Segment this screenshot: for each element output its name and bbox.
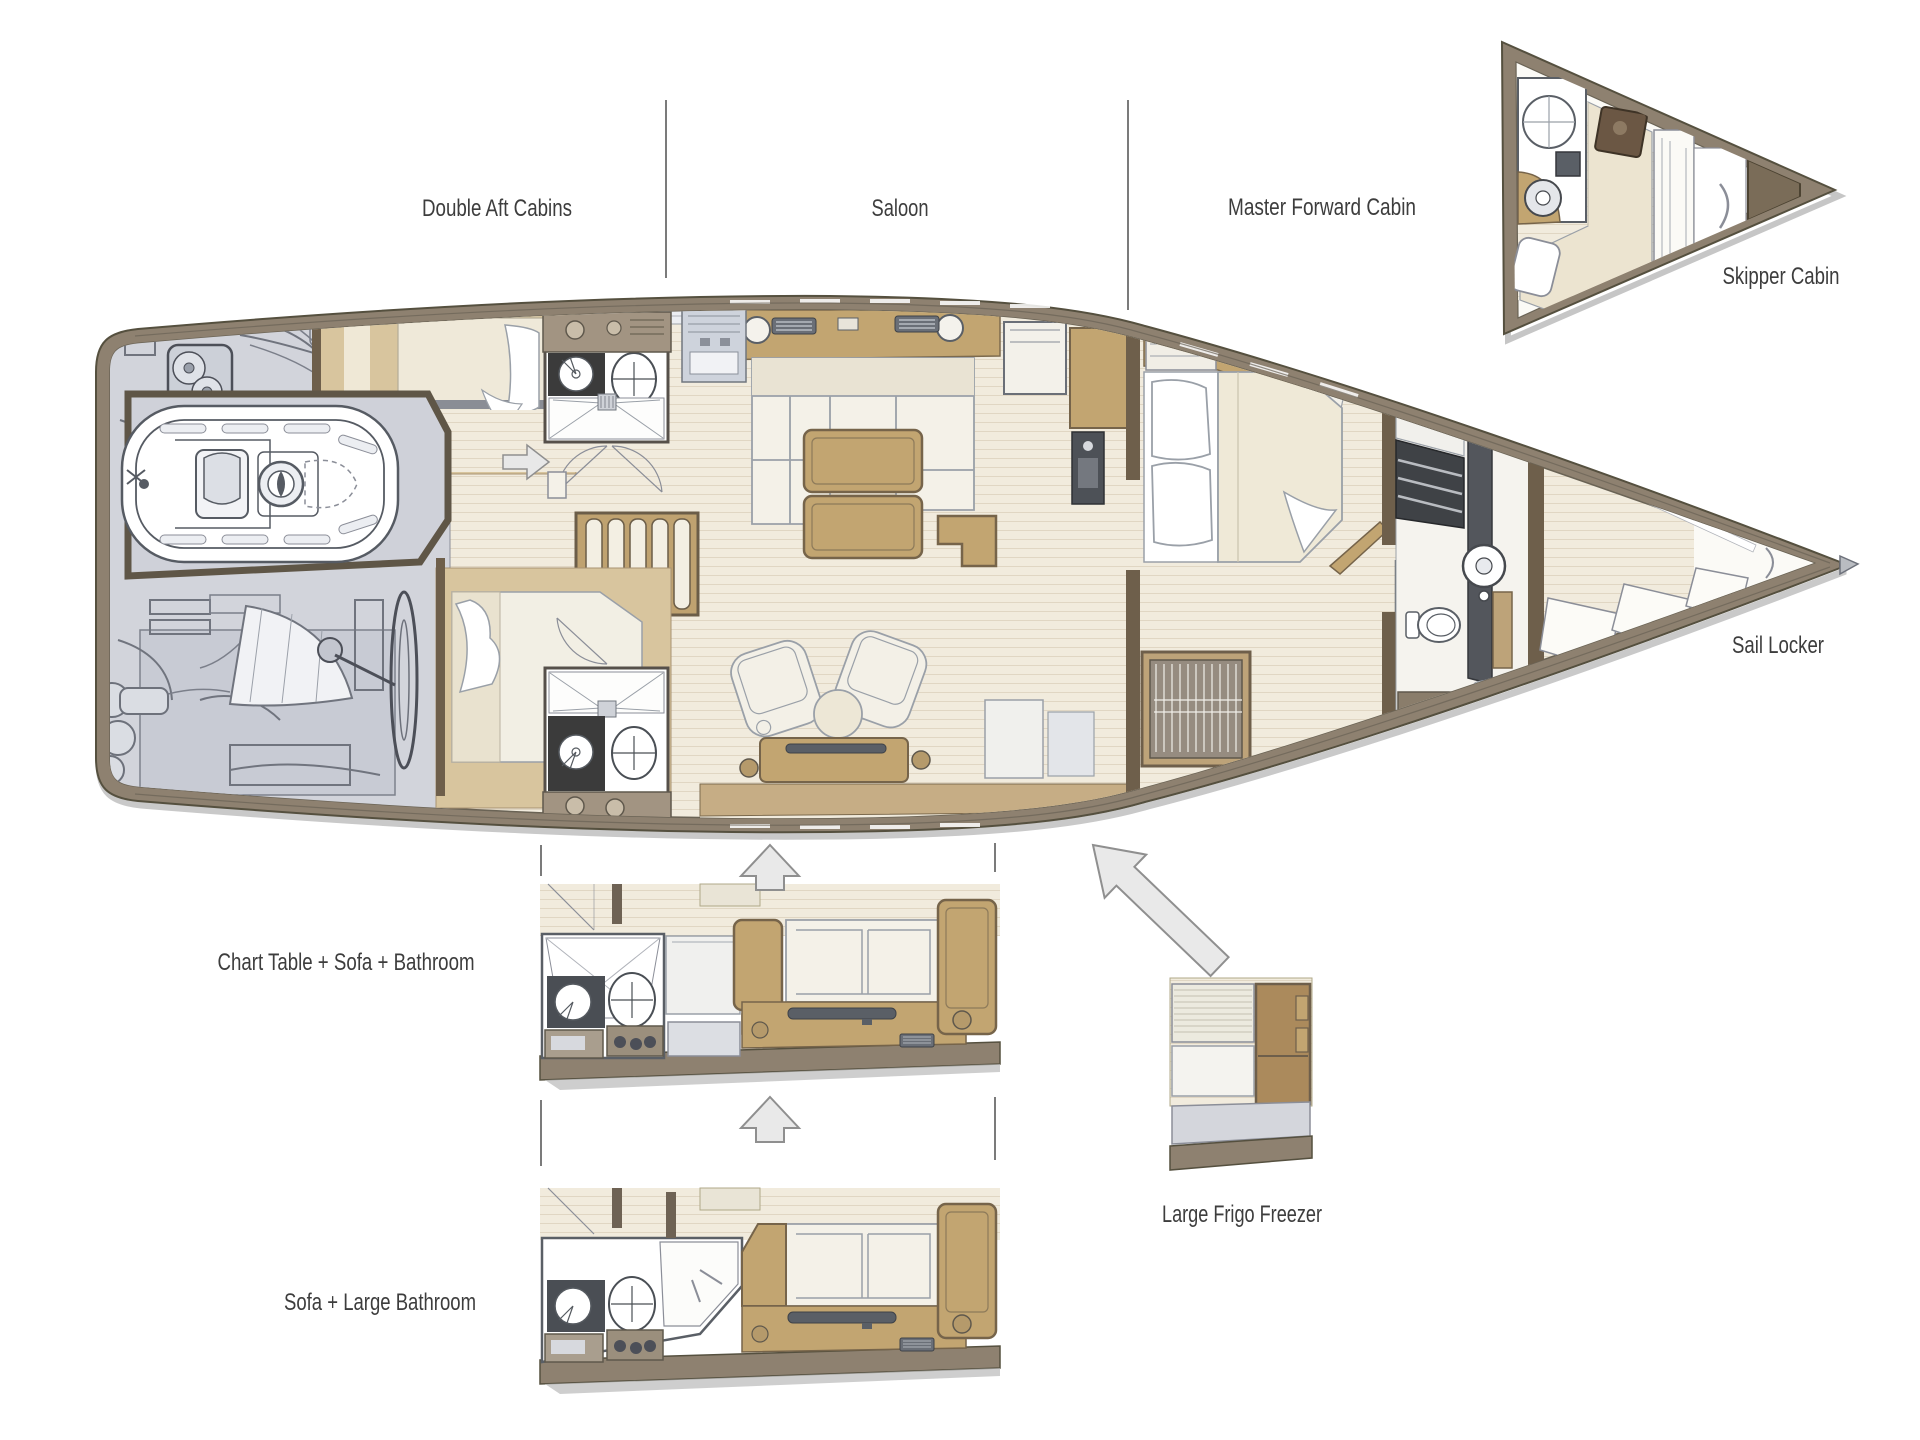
svg-text:Chart Table + Sofa + Bathroom: Chart Table + Sofa + Bathroom <box>218 949 475 976</box>
svg-text:Sail Locker: Sail Locker <box>1732 632 1824 659</box>
svg-text:Saloon: Saloon <box>872 195 929 222</box>
svg-text:Double Aft Cabins: Double Aft Cabins <box>422 195 572 222</box>
svg-text:Master Forward Cabin: Master Forward Cabin <box>1228 194 1416 221</box>
svg-text:Sofa + Large Bathroom: Sofa + Large Bathroom <box>284 1289 476 1316</box>
svg-text:Large Frigo Freezer: Large Frigo Freezer <box>1162 1201 1322 1228</box>
svg-text:Skipper Cabin: Skipper Cabin <box>1723 263 1840 290</box>
